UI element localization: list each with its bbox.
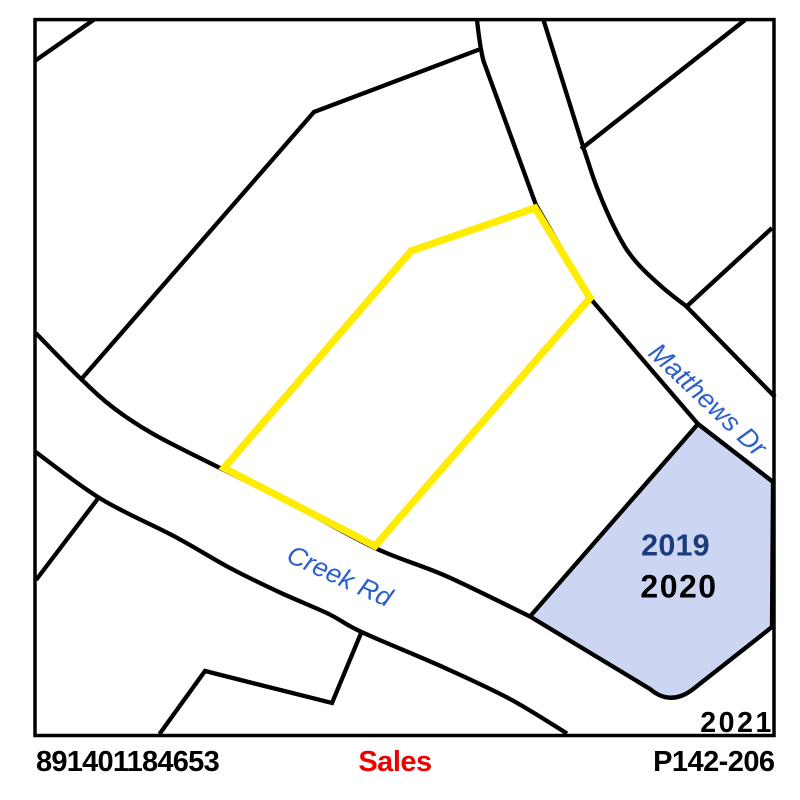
svg-text:891401184653: 891401184653 — [36, 746, 220, 778]
svg-text:2019: 2019 — [641, 529, 710, 563]
svg-text:P142-206: P142-206 — [653, 746, 775, 778]
svg-text:Sales: Sales — [358, 746, 431, 778]
svg-text:2020: 2020 — [640, 569, 717, 605]
